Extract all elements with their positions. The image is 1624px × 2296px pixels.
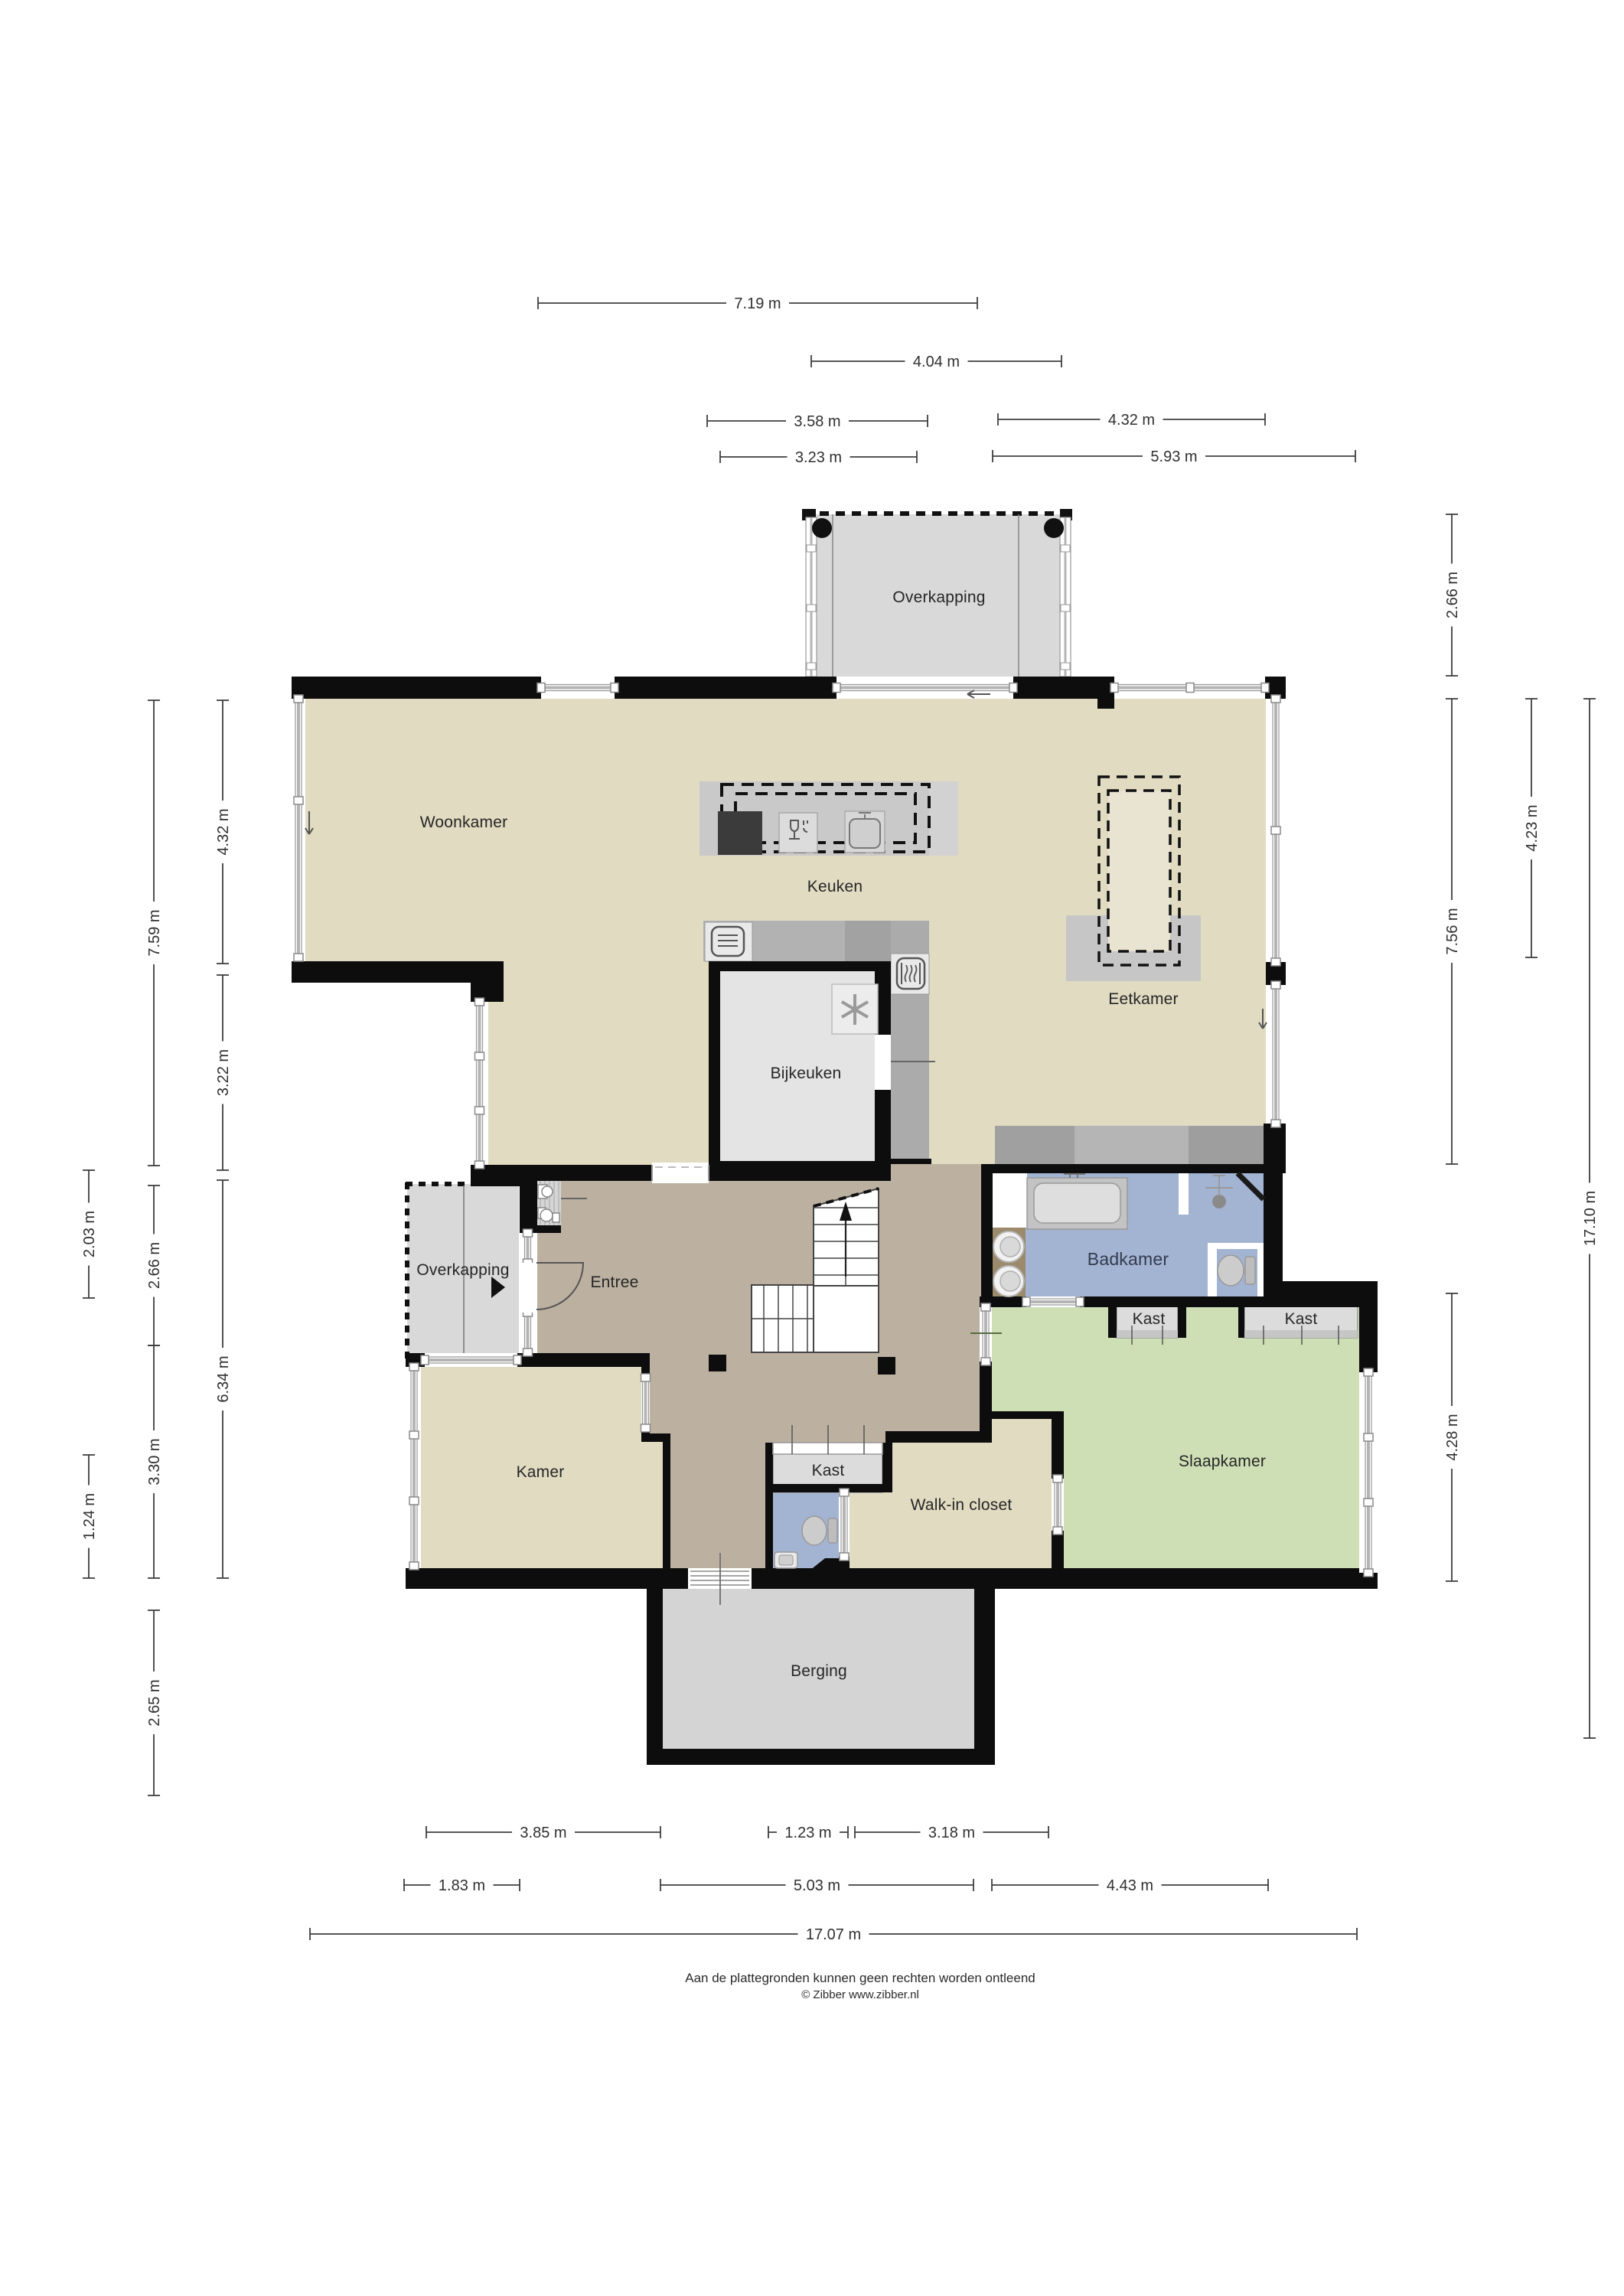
svg-text:1.83 m: 1.83 m (439, 1877, 485, 1894)
svg-text:3.22 m: 3.22 m (215, 1049, 232, 1096)
svg-text:4.28 m: 4.28 m (1444, 1414, 1461, 1460)
svg-text:2.66 m: 2.66 m (146, 1242, 163, 1289)
svg-text:3.30 m: 3.30 m (146, 1438, 163, 1485)
svg-text:2.03 m: 2.03 m (81, 1211, 98, 1257)
svg-text:Woonkamer: Woonkamer (420, 814, 508, 831)
svg-text:7.56 m: 7.56 m (1444, 908, 1461, 954)
svg-text:2.65 m: 2.65 m (146, 1679, 163, 1726)
svg-text:3.85 m: 3.85 m (520, 1825, 566, 1841)
svg-text:Overkapping: Overkapping (892, 589, 985, 606)
svg-text:Overkapping: Overkapping (416, 1261, 509, 1279)
svg-text:Badkamer: Badkamer (1088, 1249, 1169, 1269)
svg-text:Slaapkamer: Slaapkamer (1179, 1453, 1266, 1470)
svg-text:1.24 m: 1.24 m (81, 1493, 98, 1540)
svg-text:4.32 m: 4.32 m (1108, 412, 1155, 429)
svg-text:3.23 m: 3.23 m (795, 449, 842, 466)
svg-text:© Zibber www.zibber.nl: © Zibber www.zibber.nl (801, 1988, 919, 2001)
svg-text:Keuken: Keuken (807, 878, 863, 895)
svg-text:Aan de plattegronden kunnen ge: Aan de plattegronden kunnen geen rechten… (685, 1971, 1035, 1985)
svg-text:7.19 m: 7.19 m (734, 295, 781, 312)
svg-text:7.59 m: 7.59 m (146, 909, 163, 956)
svg-text:4.23 m: 4.23 m (1524, 804, 1541, 851)
svg-text:3.18 m: 3.18 m (928, 1825, 975, 1841)
svg-text:Kast: Kast (1133, 1310, 1166, 1328)
svg-text:Berging: Berging (791, 1662, 847, 1680)
svg-text:4.04 m: 4.04 m (913, 354, 960, 370)
svg-text:2.66 m: 2.66 m (1444, 572, 1461, 618)
svg-text:Entree: Entree (590, 1274, 638, 1291)
svg-text:Bijkeuken: Bijkeuken (771, 1065, 842, 1082)
svg-text:5.93 m: 5.93 m (1150, 448, 1197, 465)
svg-text:4.32 m: 4.32 m (215, 808, 232, 855)
svg-text:17.10 m: 17.10 m (1582, 1191, 1599, 1246)
svg-text:5.03 m: 5.03 m (794, 1877, 840, 1894)
svg-text:6.34 m: 6.34 m (215, 1355, 232, 1402)
svg-text:Eetkamer: Eetkamer (1108, 990, 1178, 1008)
svg-text:3.58 m: 3.58 m (794, 413, 840, 430)
svg-text:4.43 m: 4.43 m (1107, 1877, 1153, 1894)
svg-text:Kamer: Kamer (517, 1463, 565, 1481)
svg-text:Walk-in closet: Walk-in closet (911, 1496, 1013, 1514)
svg-text:Kast: Kast (1285, 1310, 1318, 1328)
svg-text:Kast: Kast (812, 1462, 845, 1479)
svg-text:17.07 m: 17.07 m (806, 1926, 861, 1943)
svg-text:1.23 m: 1.23 m (784, 1825, 831, 1841)
